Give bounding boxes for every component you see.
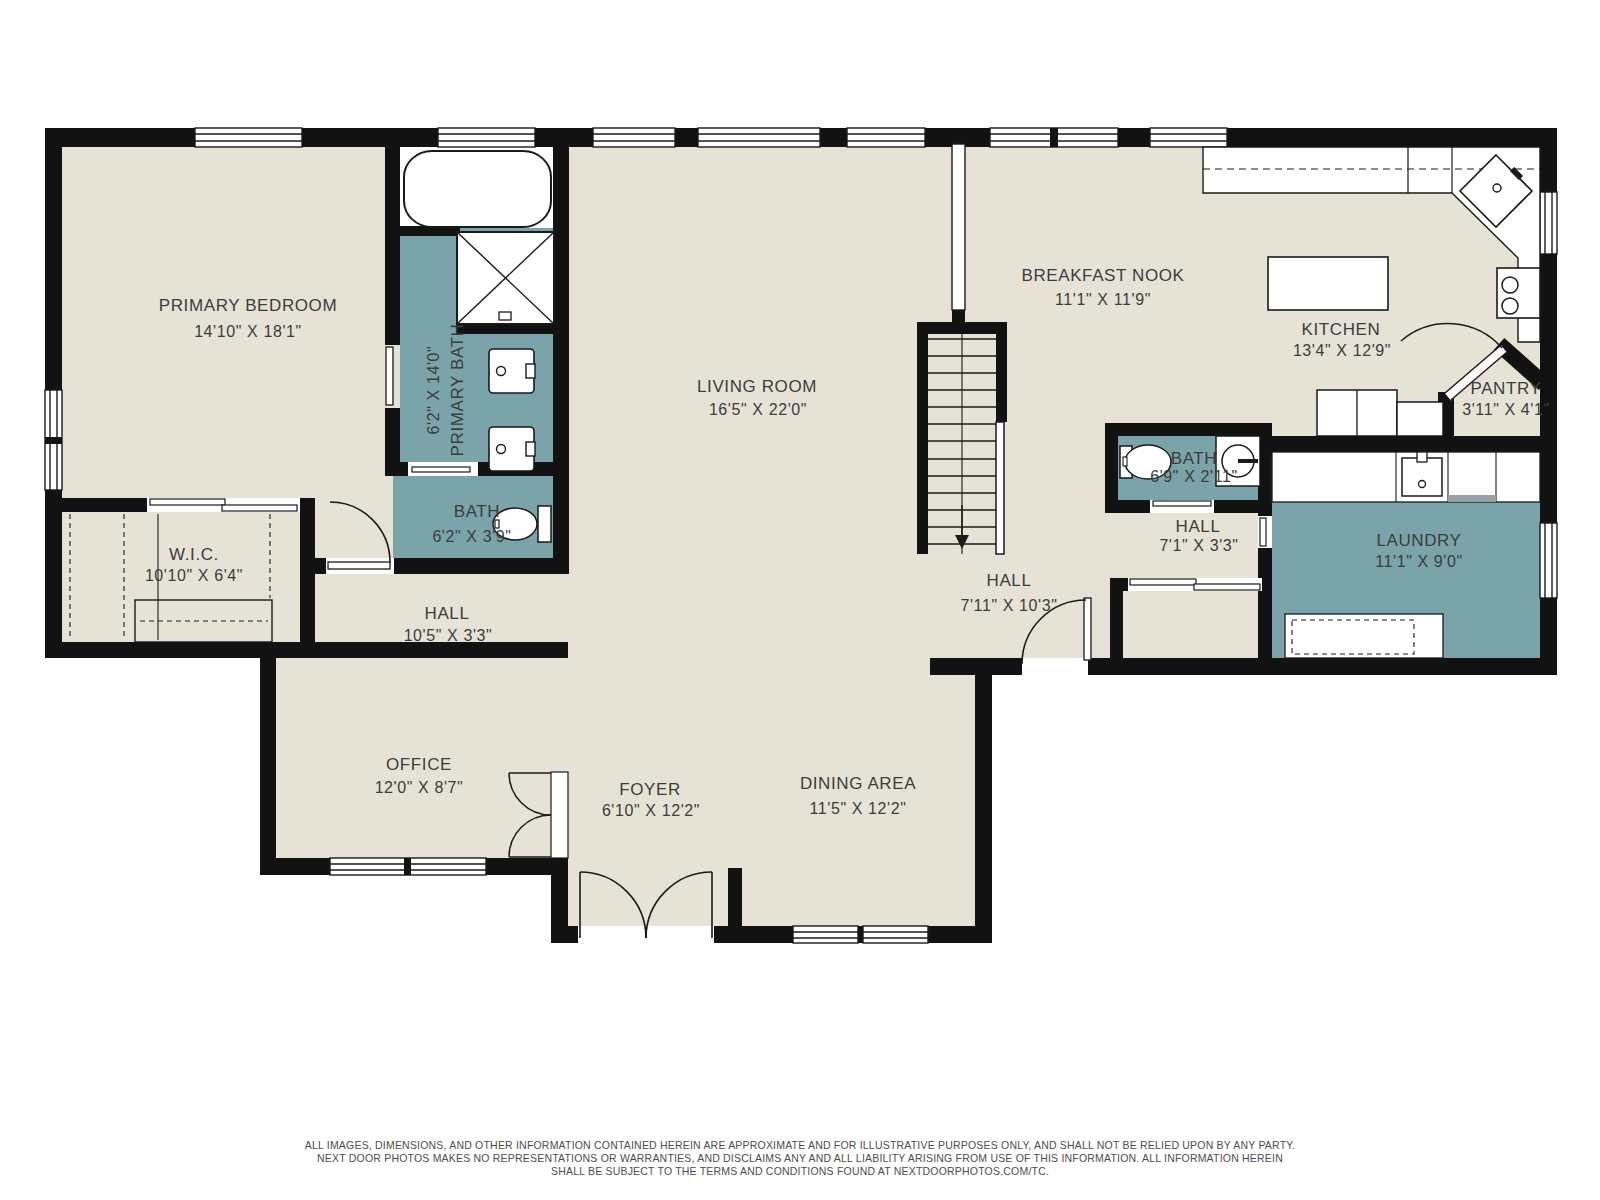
disclaimer-text: ALL IMAGES, DIMENSIONS, AND OTHER INFORM… [305,1139,1295,1177]
window-dining-2 [863,926,928,943]
window-right-laundry [1540,523,1557,598]
bathtub-fixture [404,151,551,227]
label-wic: W.I.C. [169,545,219,564]
disclaimer-line-1: ALL IMAGES, DIMENSIONS, AND OTHER INFORM… [305,1139,1295,1151]
wall-wic-right [300,498,315,658]
laundry-sink [1402,452,1442,496]
dims-bath-main: 6'2" X 3'9" [432,528,511,545]
wall-stairs-right [996,322,1007,422]
window-left-bedroom [45,390,62,490]
stove-icon [1497,268,1540,318]
window-office [330,858,486,875]
wall-bedroom-bath-lower [385,408,400,468]
wall-bedroom-bath-upper [385,140,400,345]
wall-office-left [260,642,276,875]
shower-fixture [457,232,554,324]
wall-bath-living [553,140,569,574]
wall-channel-stub [952,310,965,324]
label-office: OFFICE [386,755,452,774]
dims-kitchen: 13'4" X 12'9" [1293,342,1391,359]
dims-bath-right: 6'9" X 2'11" [1150,468,1238,485]
label-hall-left: HALL [425,604,470,623]
wall-kitchen-laundry [1270,436,1540,452]
cased-opening [952,144,965,310]
laundry-door [1258,516,1272,548]
vanity-sink-1 [489,349,535,393]
window-top-living-2 [698,128,820,147]
wic-bypass-doors [147,498,300,512]
floor-plan-page: PRIMARY BEDROOM 14'10" X 18'1" PRIMARY B… [0,0,1600,1200]
floor-areas [53,136,1548,936]
dims-living-room: 16'5" X 22'0" [709,401,807,418]
dims-office: 12'0" X 8'7" [375,779,464,796]
wall-stairs-left [917,322,928,554]
dims-laundry: 11'1" X 9'0" [1375,553,1463,570]
closet-bypass-doors [1128,578,1262,591]
label-living-room: LIVING ROOM [697,377,817,396]
window-right-kitchen [1540,192,1557,254]
wall-foyer-dining-stub [728,868,742,943]
label-hall-small: HALL [1176,517,1221,536]
label-breakfast-nook: BREAKFAST NOOK [1021,266,1184,285]
window-top-kitchen [1150,128,1227,147]
window-top-living-1 [593,128,675,147]
label-foyer: FOYER [619,780,681,799]
window-top-tub [438,128,535,147]
bath-right-door [1150,500,1214,513]
label-bath-main: BATH [454,502,500,521]
label-kitchen: KITCHEN [1302,320,1381,339]
wall-dining-right [975,658,992,943]
wall-closet-left [1110,578,1123,675]
dims-pantry: 3'11" X 4'1" [1462,401,1550,418]
dims-hall-left: 10'5" X 3'3" [404,627,493,644]
laundry-counter [1272,452,1540,502]
vanity-sink-2 [489,427,535,471]
primary-bath-door [385,345,400,408]
dims-hall-small: 7'1" X 3'3" [1159,537,1238,554]
label-hall-big: HALL [987,571,1032,590]
label-dining-area: DINING AREA [800,774,916,793]
disclaimer-line-2: NEXT DOOR PHOTOS MAKES NO REPRESENTATION… [317,1152,1283,1164]
label-bath-right: BATH [1171,449,1217,468]
dims-wic: 10'10" X 6'4" [145,567,243,584]
wall-bath-right-left [1105,423,1118,513]
wall-bath-right-top [1105,423,1272,436]
dims-primary-bedroom: 14'10" X 18'1" [194,323,302,340]
label-pantry: PANTRY [1471,379,1542,398]
window-top-living-3 [847,128,925,147]
window-top-nook [990,128,1118,147]
label-primary-bedroom: PRIMARY BEDROOM [159,296,337,315]
dims-foyer: 6'10" X 12'2" [602,802,700,819]
window-dining-1 [793,926,858,943]
bath-main-door [408,462,478,476]
disclaimer-line-3: SHALL BE SUBJECT TO THE TERMS AND CONDIT… [551,1165,1049,1177]
kitchen-island [1268,257,1388,310]
dims-dining-area: 11'5" X 12'2" [809,800,906,817]
dims-hall-big: 7'11" X 10'3" [960,597,1057,614]
floor-plan-diagram: PRIMARY BEDROOM 14'10" X 18'1" PRIMARY B… [0,0,1600,1200]
window-top-bedroom [195,128,302,147]
dims-primary-bath: 6'2" X 14'0" [425,346,442,435]
label-laundry: LAUNDRY [1376,531,1461,550]
label-primary-bath: PRIMARY BATH [448,324,467,457]
washer-dryer [1285,614,1443,658]
dims-breakfast-nook: 11'1" X 11'9" [1055,291,1151,308]
